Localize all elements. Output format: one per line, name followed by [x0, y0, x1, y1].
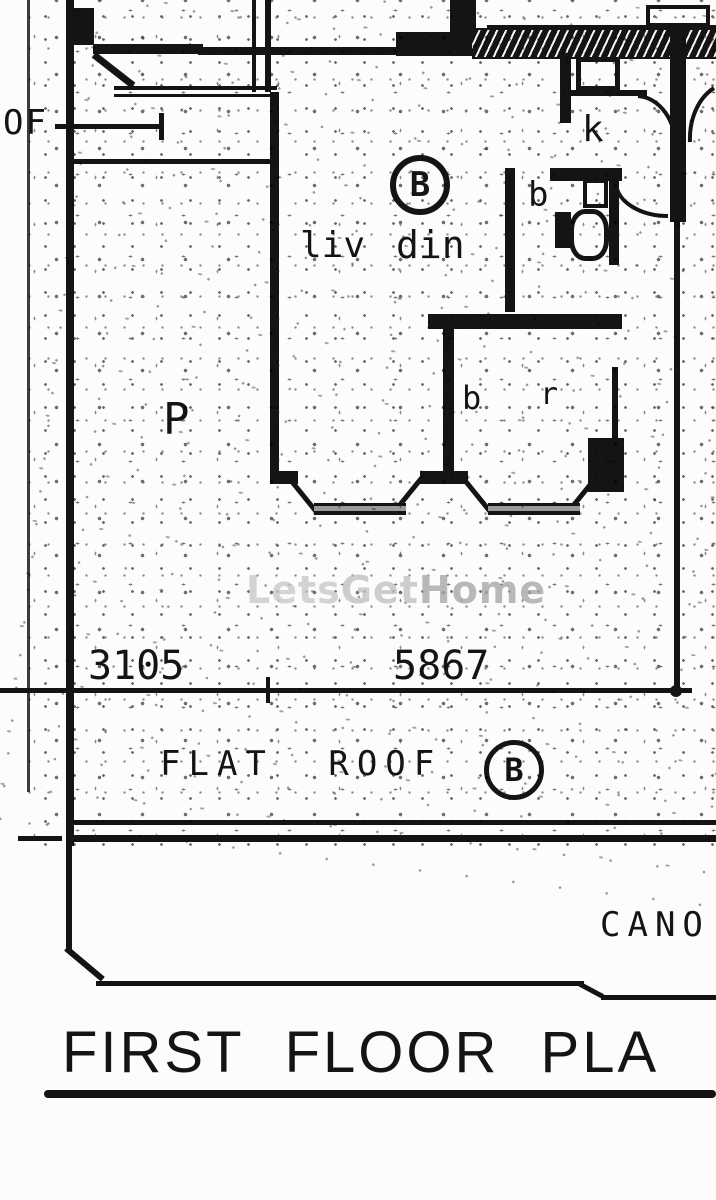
title-underline	[44, 1090, 716, 1098]
roof-edge-label: OF	[3, 106, 48, 140]
bottom-wall-seg-b	[420, 471, 468, 484]
canopy-outline-line-2	[601, 995, 716, 1000]
wc-bowl	[569, 209, 609, 261]
sheet-title: FIRST FLOOR PLA	[62, 1024, 659, 1082]
flat-roof-circle-label: B	[504, 754, 523, 786]
flat-roof-bottom-line-2	[70, 835, 716, 842]
parapet-chamfer	[92, 52, 136, 88]
dimension-left-value: 3105	[88, 646, 184, 686]
top-window-symbol	[646, 5, 710, 27]
kitchen-sink	[576, 57, 620, 91]
bay2-window-sill	[488, 503, 580, 515]
canopy-outline-line	[96, 981, 584, 986]
right-wall-thick	[670, 30, 686, 222]
bath-label: b	[528, 178, 548, 212]
unit-circle-top-label: B	[410, 168, 430, 202]
canopy-left-wall	[66, 842, 72, 952]
left-area-top-line	[70, 159, 277, 164]
living-label: liv	[300, 228, 365, 264]
bath-left-wall	[505, 168, 515, 312]
left-area-label: P	[163, 398, 190, 442]
right-wall-thin	[674, 222, 680, 690]
unit-circle-top: B	[390, 155, 450, 215]
bottom-wall-seg-c	[594, 471, 624, 484]
top-duct-wall-a	[252, 0, 256, 92]
dimension-dot-right	[670, 685, 682, 697]
canopy-corner-diag	[64, 946, 105, 981]
kitchen-left-wall	[560, 53, 571, 123]
bedroom-label-b: b	[462, 382, 481, 414]
dimension-right-value: 5867	[393, 646, 489, 686]
canopy-edge-line-2	[114, 94, 277, 97]
flat-roof-label: FLAT ROOF	[160, 747, 442, 781]
top-duct-wall-b	[265, 0, 271, 92]
dimension-tick-mid	[266, 677, 270, 703]
flat-roof-bottom-line-1	[70, 820, 716, 825]
parapet-wall	[93, 44, 203, 54]
living-left-wall	[270, 92, 279, 482]
watermark: LetsGetHome	[246, 568, 546, 612]
upper-wall-run	[198, 47, 398, 55]
leader-line	[55, 124, 163, 129]
hall-door-arc	[688, 86, 716, 146]
bay1-window-sill	[314, 503, 406, 515]
canopy-label: CANO	[600, 908, 710, 942]
mid-horizontal-wall	[428, 314, 622, 329]
dining-label: din	[396, 226, 465, 264]
bedroom-left-wall	[443, 329, 454, 477]
bath-window-symbol	[583, 179, 608, 208]
watermark-part1: Lets	[246, 568, 341, 612]
left-wall-top-corner	[66, 8, 94, 45]
watermark-part3: Home	[419, 568, 546, 612]
flat-roof-circle: B	[484, 740, 544, 800]
leader-end-tick	[159, 113, 164, 140]
floor-plan-sheet: OF B liv din k b b r	[0, 0, 716, 1200]
bath-door-arc	[614, 180, 672, 218]
kitchen-label: k	[582, 112, 604, 148]
left-edge-dash	[18, 836, 62, 841]
watermark-part2: Get	[341, 568, 419, 612]
bedroom-label-r: r	[540, 380, 558, 410]
bedroom-right-wall-thin	[612, 367, 618, 445]
